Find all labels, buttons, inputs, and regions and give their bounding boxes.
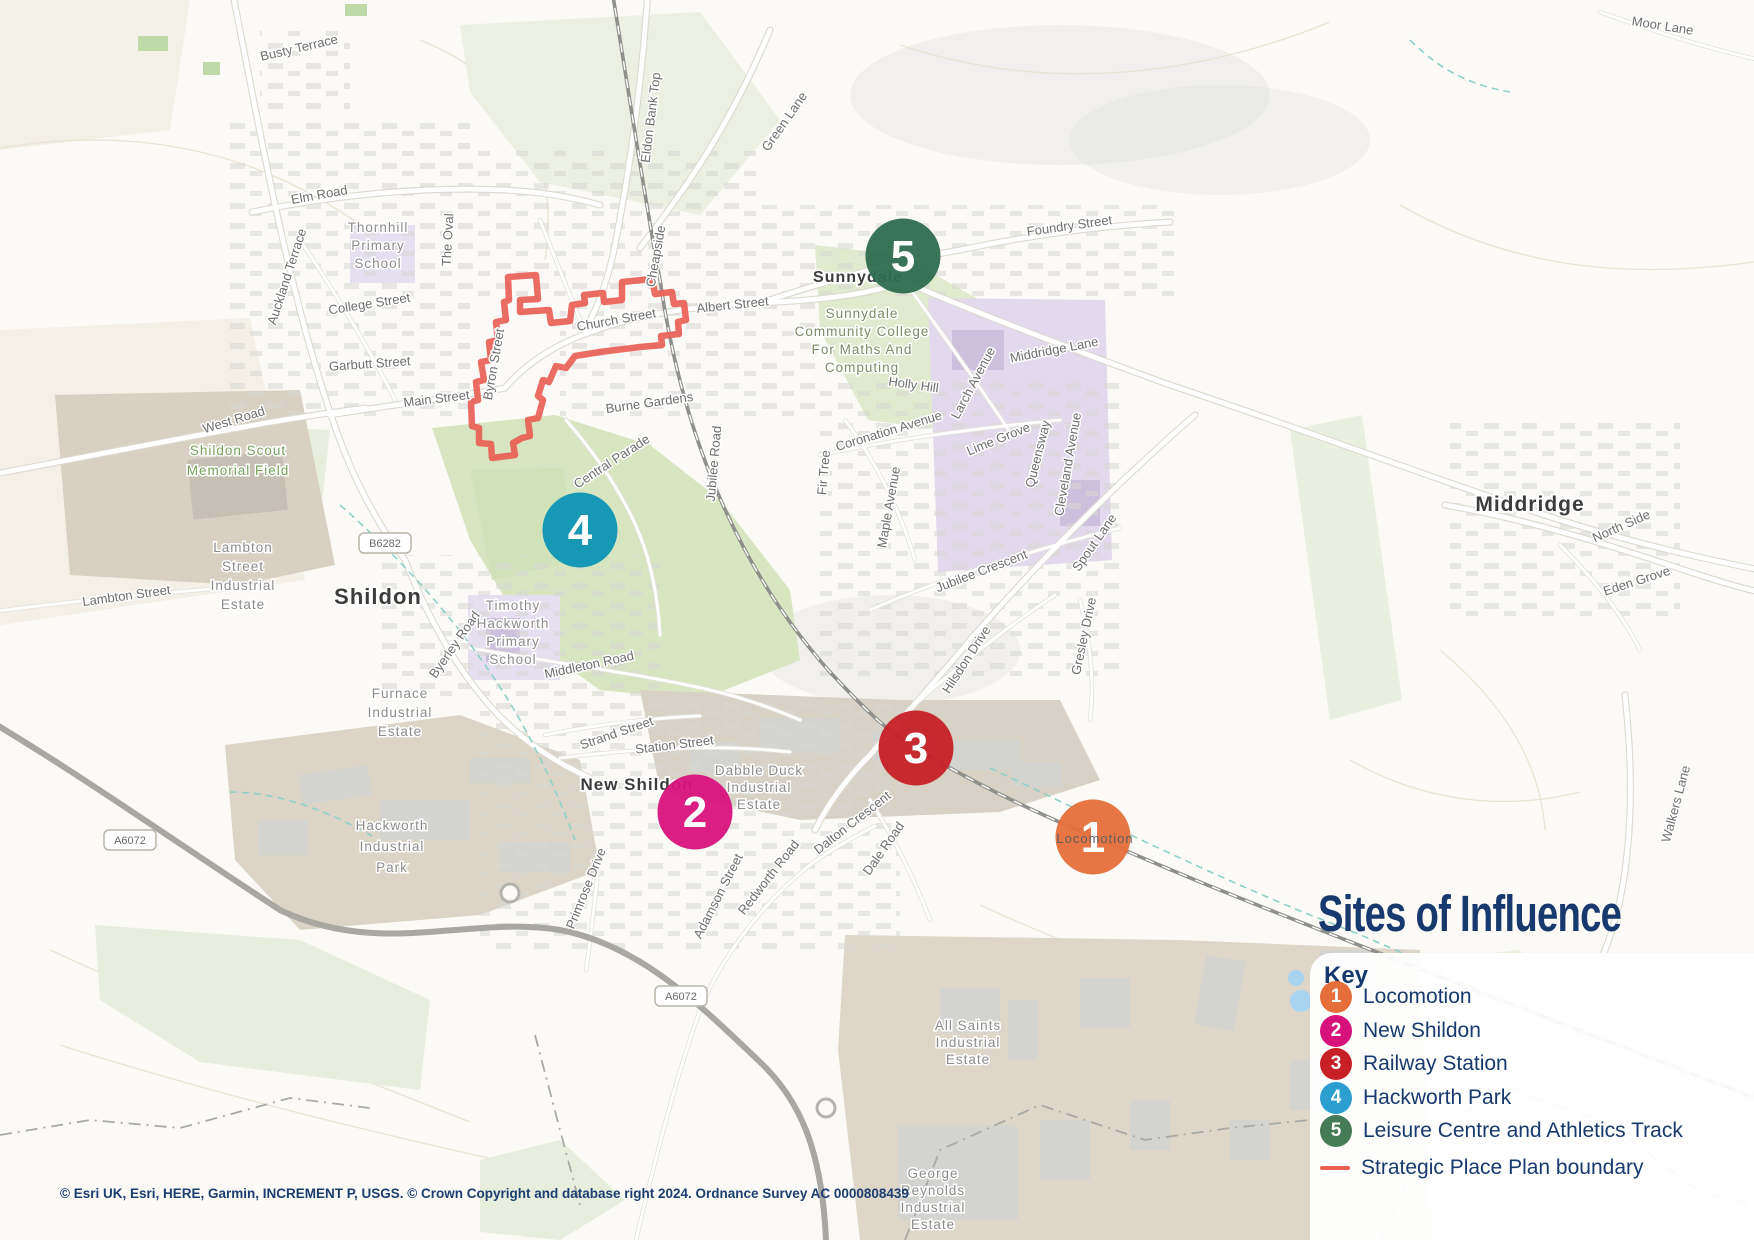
map-marker-2[interactable]: 2 bbox=[658, 775, 733, 850]
legend-boundary-label: Strategic Place Plan boundary bbox=[1361, 1156, 1644, 1180]
roundabout bbox=[817, 1099, 835, 1117]
legend-item-number: 4 bbox=[1320, 1082, 1352, 1114]
roundabout bbox=[501, 884, 519, 902]
legend-item-4: 4Hackworth Park bbox=[1320, 1082, 1511, 1114]
road-shield-label: A6072 bbox=[665, 991, 697, 1003]
legend-item-5: 5Leisure Centre and Athletics Track bbox=[1320, 1115, 1683, 1147]
locomotion-map-label: Locomotion bbox=[1056, 831, 1133, 846]
map-marker-3[interactable]: 3 bbox=[879, 711, 954, 786]
legend-item-number: 5 bbox=[1320, 1115, 1352, 1147]
street-label: The Oval bbox=[439, 213, 457, 267]
legend-item-label: Leisure Centre and Athletics Track bbox=[1363, 1119, 1683, 1143]
legend-item-label: Locomotion bbox=[1363, 985, 1472, 1009]
legend-item-label: New Shildon bbox=[1363, 1019, 1481, 1043]
marker-number: 5 bbox=[891, 232, 915, 281]
map-canvas: {"" } bbox=[0, 0, 1754, 1240]
legend-item-3: 3Railway Station bbox=[1320, 1048, 1508, 1080]
legend-item-number: 1 bbox=[1320, 981, 1352, 1013]
marker-number: 2 bbox=[683, 788, 707, 837]
map-marker-4[interactable]: 4 bbox=[543, 493, 618, 568]
town-label: Middridge bbox=[1475, 493, 1584, 516]
page-title: Sites of Influence bbox=[1318, 884, 1621, 943]
legend-item-2: 2New Shildon bbox=[1320, 1015, 1481, 1047]
marker-number: 4 bbox=[568, 506, 593, 555]
legend-item-number: 3 bbox=[1320, 1048, 1352, 1080]
boundary-line-swatch bbox=[1320, 1166, 1350, 1170]
legend-item-1: 1Locomotion bbox=[1320, 981, 1472, 1013]
top-labels-layer: Locomotion bbox=[1056, 831, 1133, 846]
pond bbox=[1288, 970, 1304, 986]
legend-item-label: Railway Station bbox=[1363, 1052, 1508, 1076]
town-label: Shildon bbox=[334, 584, 422, 609]
area-label: ThornhillPrimarySchool bbox=[348, 220, 409, 271]
road-shield-label: B6282 bbox=[369, 538, 401, 550]
marker-number: 3 bbox=[904, 724, 928, 773]
legend-boundary-item: Strategic Place Plan boundary bbox=[1320, 1152, 1644, 1184]
map-attribution: © Esri UK, Esri, HERE, Garmin, INCREMENT… bbox=[60, 1186, 909, 1201]
legend-item-label: Hackworth Park bbox=[1363, 1086, 1511, 1110]
road-shield-label: A6072 bbox=[114, 835, 146, 847]
legend-item-number: 2 bbox=[1320, 1015, 1352, 1047]
pond bbox=[1290, 990, 1312, 1012]
map-marker-5[interactable]: 5 bbox=[866, 219, 941, 294]
